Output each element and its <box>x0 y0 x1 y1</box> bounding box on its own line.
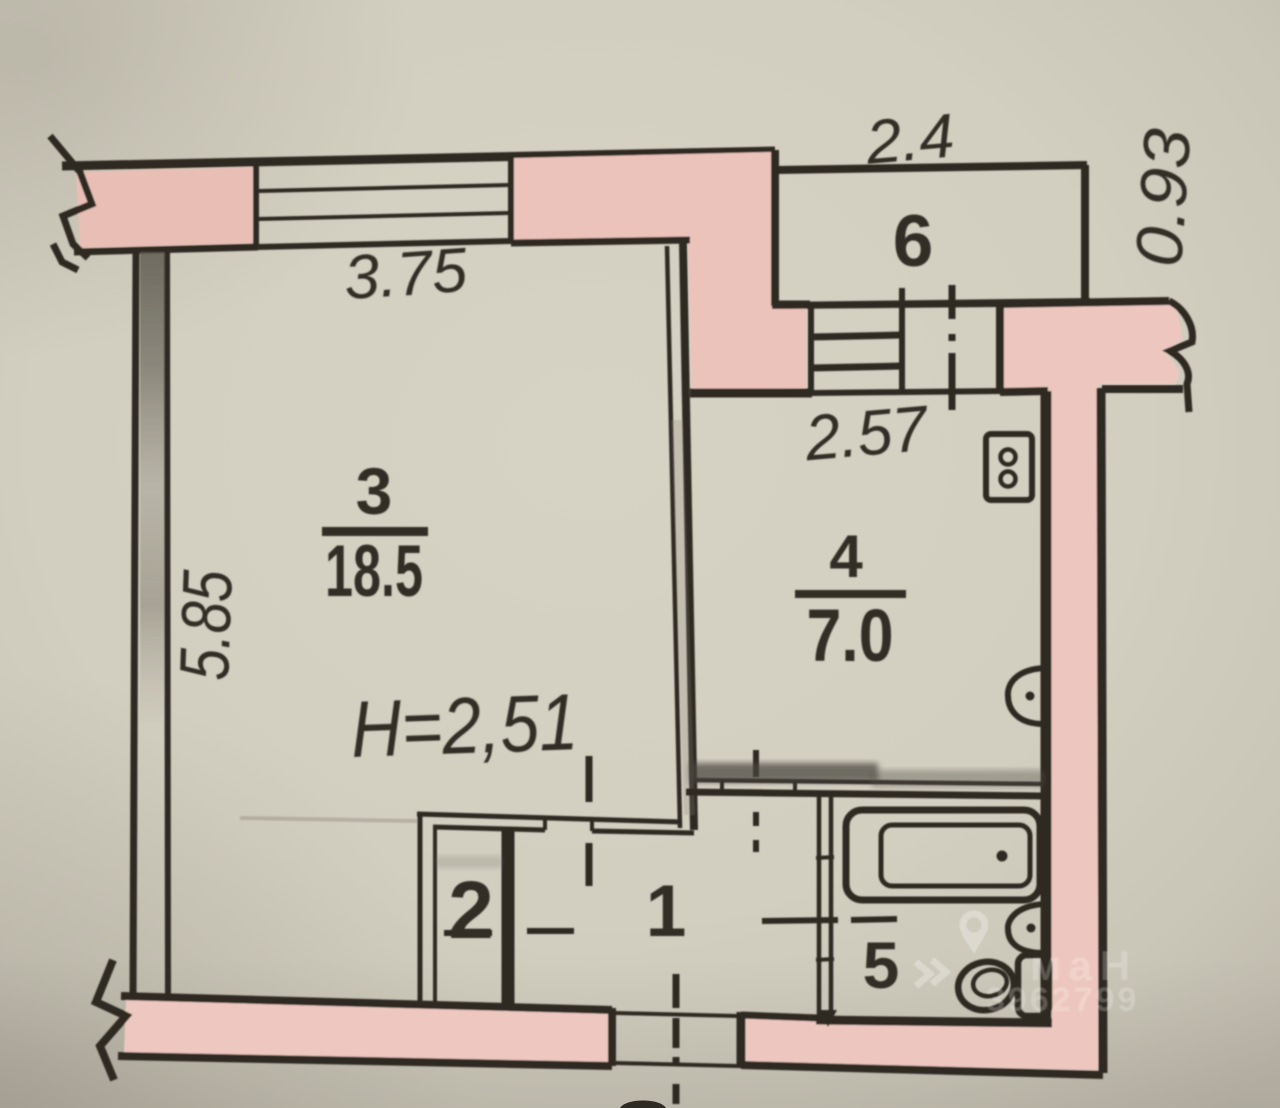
svg-text:H=2,51: H=2,51 <box>349 677 579 774</box>
svg-text:6: 6 <box>893 201 934 282</box>
svg-text:4: 4 <box>829 523 863 590</box>
svg-text:5.85: 5.85 <box>165 568 247 682</box>
svg-text:7.0: 7.0 <box>807 594 894 677</box>
svg-text:5: 5 <box>863 928 900 1002</box>
svg-text:2: 2 <box>448 865 494 956</box>
svg-text:18.5: 18.5 <box>325 531 423 612</box>
svg-text:1: 1 <box>646 871 687 952</box>
svg-text:2.57: 2.57 <box>801 392 932 475</box>
svg-text:3: 3 <box>356 454 393 528</box>
svg-text:2.4: 2.4 <box>862 101 957 177</box>
svg-text:0.93: 0.93 <box>1121 126 1204 269</box>
svg-text:3962799: 3962799 <box>986 981 1139 1019</box>
svg-text:3.75: 3.75 <box>342 236 470 313</box>
